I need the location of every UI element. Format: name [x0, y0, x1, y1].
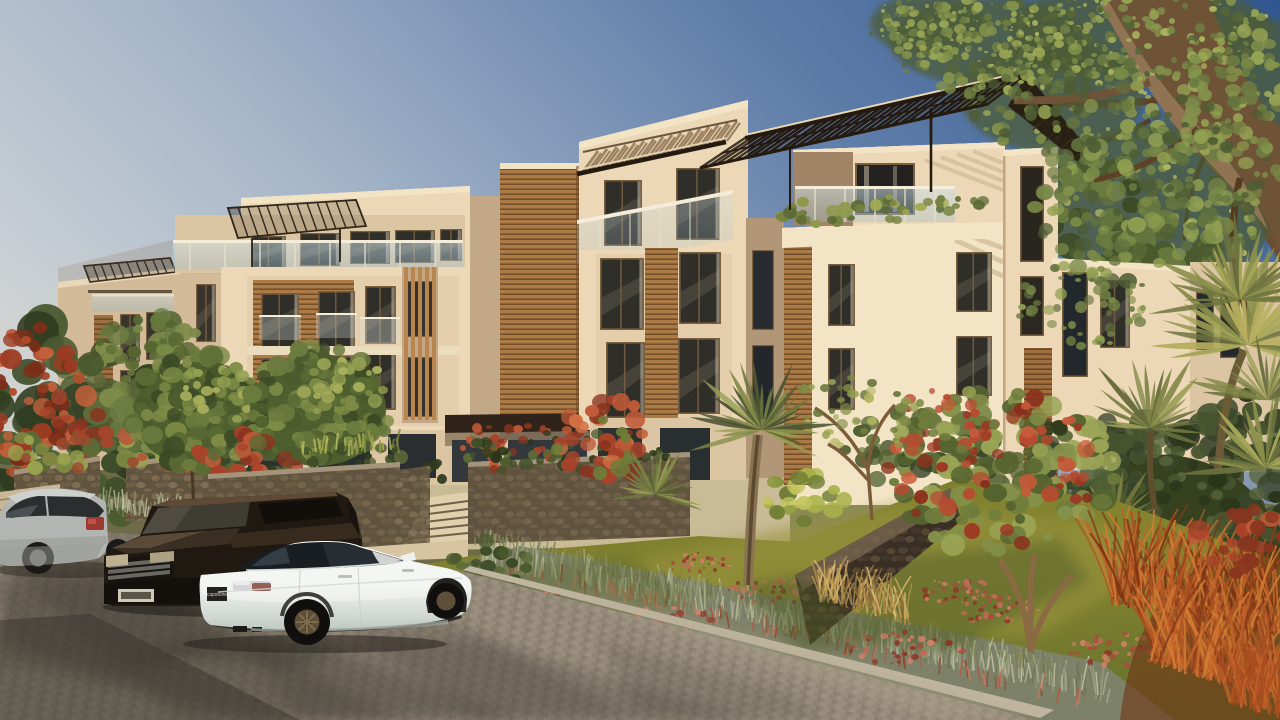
svg-text:capstone: capstone: [207, 592, 228, 598]
